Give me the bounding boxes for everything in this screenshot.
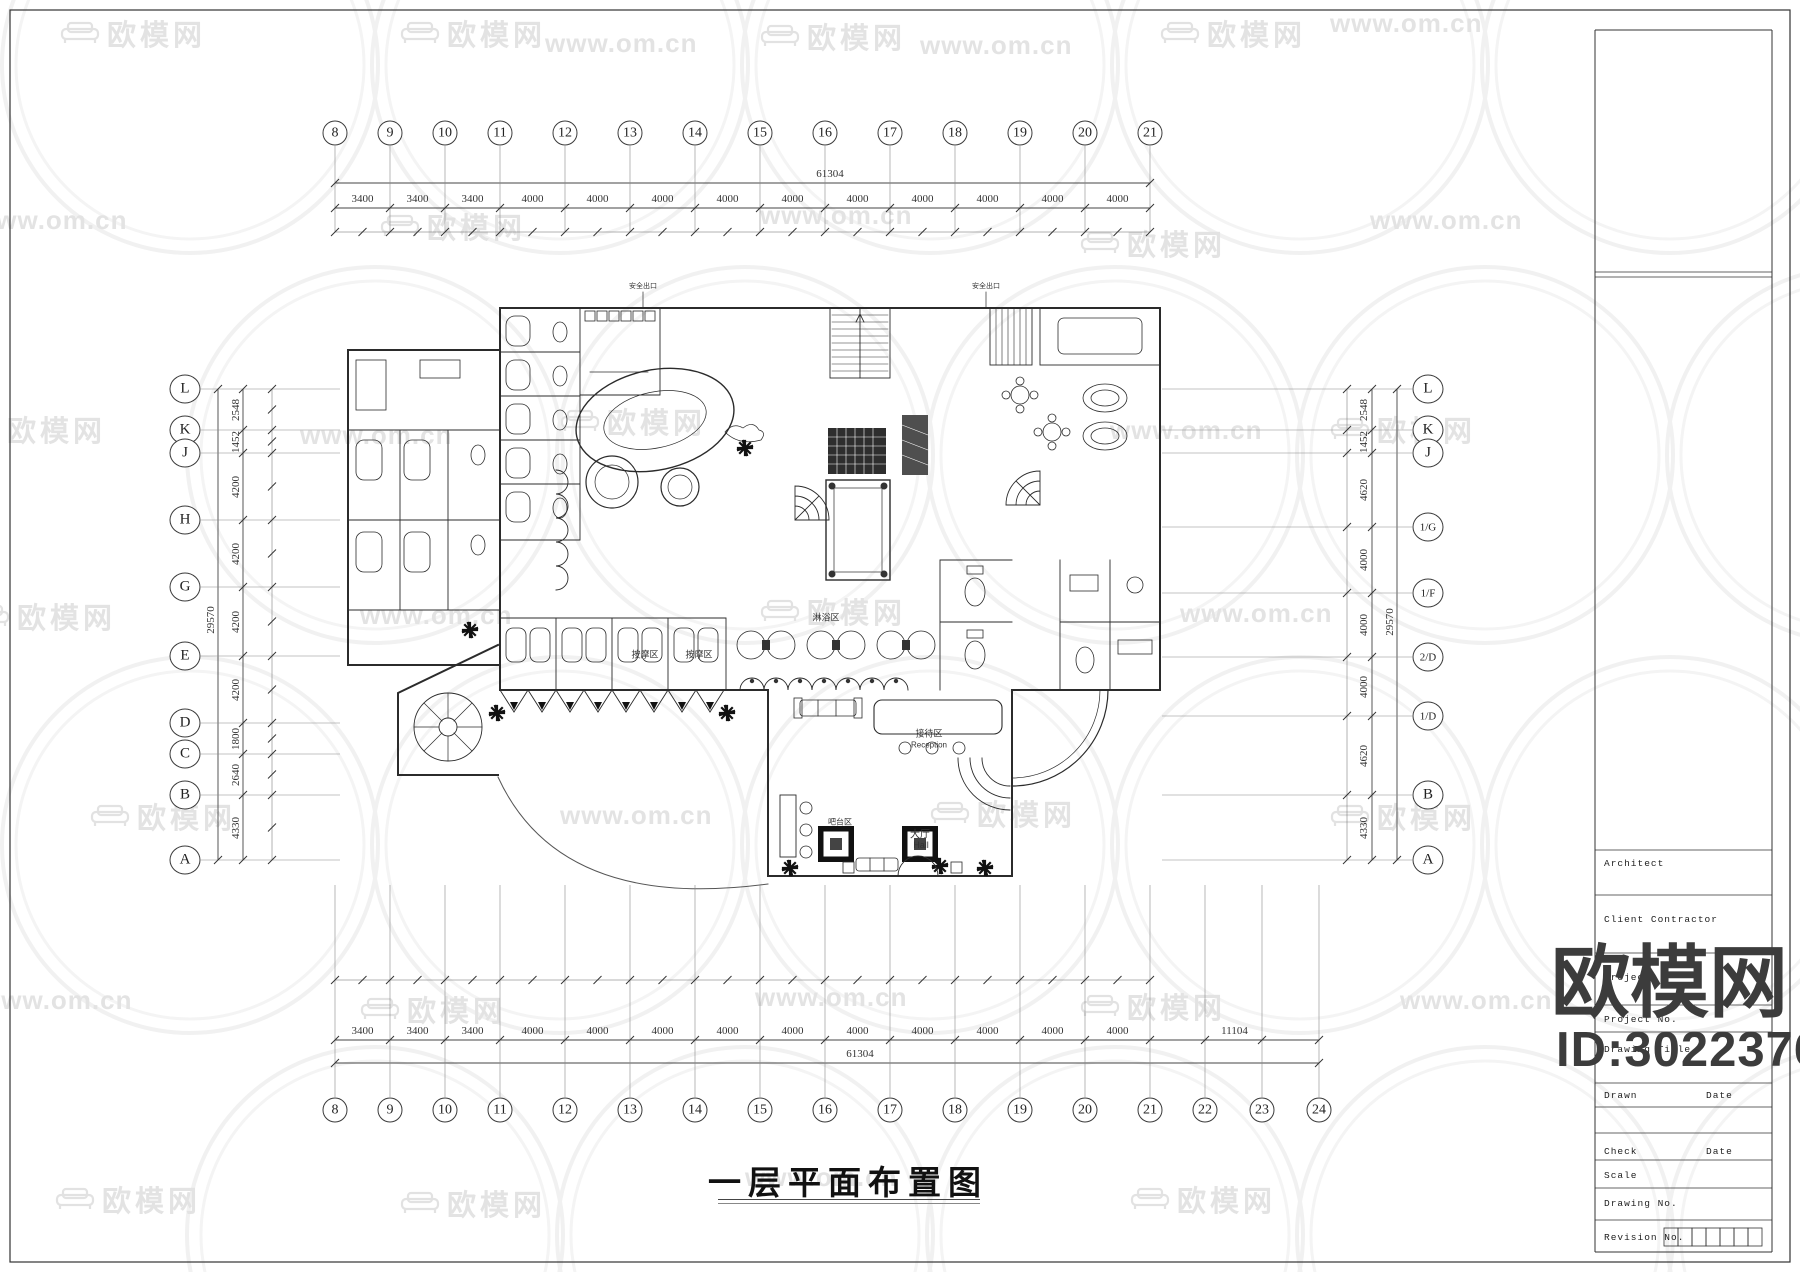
dim-right-segment: 4000 (1358, 614, 1370, 636)
plan-label: 安全出口 (629, 281, 657, 291)
dim-top-segment: 3400 (462, 193, 484, 205)
dim-bottom-segment: 4000 (847, 1025, 869, 1037)
grid-bubble-top-21: 21 (1138, 121, 1163, 146)
grid-bubble-left-J: J (170, 439, 201, 468)
grid-bubble-top-17: 17 (878, 121, 903, 146)
grid-bubble-top-11: 11 (488, 121, 513, 146)
dim-top-segment: 4000 (652, 193, 674, 205)
dim-right-segment: 1452 (1358, 431, 1370, 453)
grid-bubble-top-20: 20 (1073, 121, 1098, 146)
grid-bubble-top-15: 15 (748, 121, 773, 146)
dim-top-segment: 4000 (1107, 193, 1129, 205)
dim-left-segment: 4200 (230, 543, 242, 565)
dim-left-segment: 4200 (230, 679, 242, 701)
grid-bubble-right-1-D: 1/D (1413, 702, 1444, 731)
grid-bubble-right-L: L (1413, 375, 1444, 404)
dim-left-segment: 4200 (230, 476, 242, 498)
grid-bubble-right-B: B (1413, 781, 1444, 810)
grid-bubble-top-12: 12 (553, 121, 578, 146)
grid-bubble-left-L: L (170, 375, 201, 404)
grid-bubble-bottom-24: 24 (1307, 1098, 1332, 1123)
grid-bubble-bottom-17: 17 (878, 1098, 903, 1123)
plan-label: 大厅 (910, 826, 930, 841)
titleblock-check-date-label: Date (1706, 1146, 1733, 1157)
grid-bubble-top-14: 14 (683, 121, 708, 146)
plan-label: Reception (911, 741, 947, 750)
grid-bubble-bottom-21: 21 (1138, 1098, 1163, 1123)
dim-top-segment: 4000 (522, 193, 544, 205)
dim-left-segment: 4200 (230, 611, 242, 633)
plan-label: 安全出口 (972, 281, 1000, 291)
dim-left-total: 29570 (205, 606, 217, 634)
dim-bottom-segment: 4000 (717, 1025, 739, 1037)
dim-right-segment: 4000 (1358, 549, 1370, 571)
grid-dimension-lines (0, 0, 1800, 1272)
dim-bottom-segment: 4000 (782, 1025, 804, 1037)
dim-left-segment: 1452 (230, 431, 242, 453)
dim-bottom-segment: 3400 (462, 1025, 484, 1037)
grid-bubble-top-19: 19 (1008, 121, 1033, 146)
plan-label: 按摩区 (631, 648, 658, 661)
titleblock-check-label: Check (1604, 1146, 1638, 1157)
dim-bottom-segment: 4000 (1107, 1025, 1129, 1037)
grid-bubble-top-18: 18 (943, 121, 968, 146)
dim-bottom-segment: 11104 (1221, 1025, 1248, 1037)
grid-bubble-bottom-16: 16 (813, 1098, 838, 1123)
grid-bubble-right-J: J (1413, 439, 1444, 468)
dim-top-segment: 3400 (407, 193, 429, 205)
dim-right-segment: 4620 (1358, 479, 1370, 501)
dim-right-segment: 4620 (1358, 745, 1370, 767)
grid-bubble-bottom-15: 15 (748, 1098, 773, 1123)
dim-top-segment: 4000 (717, 193, 739, 205)
dim-bottom-segment: 4000 (977, 1025, 999, 1037)
grid-bubble-right-2-D: 2/D (1413, 643, 1444, 672)
grid-bubble-right-1-F: 1/F (1413, 579, 1444, 608)
grid-bubble-bottom-11: 11 (488, 1098, 513, 1123)
dim-top-segment: 4000 (912, 193, 934, 205)
grid-bubble-left-A: A (170, 846, 201, 875)
grid-bubble-top-8: 8 (323, 121, 348, 146)
title-underline-2 (718, 1203, 980, 1204)
dim-left-segment: 2640 (230, 764, 242, 786)
dim-left-segment: 1800 (230, 728, 242, 750)
dim-top-segment: 4000 (977, 193, 999, 205)
dim-top-segment: 4000 (587, 193, 609, 205)
grid-bubble-left-C: C (170, 740, 201, 769)
grid-bubble-left-D: D (170, 709, 201, 738)
dim-right-total: 29570 (1384, 608, 1396, 636)
grid-bubble-top-16: 16 (813, 121, 838, 146)
dim-top-segment: 4000 (847, 193, 869, 205)
grid-bubble-bottom-10: 10 (433, 1098, 458, 1123)
grid-bubble-left-G: G (170, 573, 201, 602)
plan-label: 接待区 (915, 727, 942, 740)
cad-sheet: { "sheet_title": "一层平面布置图", "brand": { "… (0, 0, 1800, 1272)
titleblock-revision-no-label: Revision No. (1604, 1232, 1684, 1243)
dim-bottom-segment: 3400 (352, 1025, 374, 1037)
dim-right-segment: 4330 (1358, 817, 1370, 839)
dim-bottom-segment: 4000 (522, 1025, 544, 1037)
dim-bottom-segment: 4000 (912, 1025, 934, 1037)
grid-bubble-bottom-14: 14 (683, 1098, 708, 1123)
grid-bubble-top-9: 9 (378, 121, 403, 146)
grid-bubble-right-1-G: 1/G (1413, 513, 1444, 542)
plan-label: 吧台区 (828, 817, 852, 828)
brand-logo: 欧模网 (1551, 918, 1788, 1033)
plan-label: 按摩区 (685, 648, 712, 661)
grid-bubble-bottom-19: 19 (1008, 1098, 1033, 1123)
plan-label: 淋浴区 (812, 611, 839, 624)
grid-bubble-bottom-9: 9 (378, 1098, 403, 1123)
grid-bubble-bottom-20: 20 (1073, 1098, 1098, 1123)
dim-left-segment: 4330 (230, 817, 242, 839)
dim-bottom-segment: 4000 (1042, 1025, 1064, 1037)
grid-bubble-bottom-23: 23 (1250, 1098, 1275, 1123)
dim-bottom-segment: 4000 (652, 1025, 674, 1037)
titleblock-drawn-date-label: Date (1706, 1090, 1733, 1101)
titleblock-drawing-no-label: Drawing No. (1604, 1198, 1678, 1209)
dim-top-segment: 3400 (352, 193, 374, 205)
grid-bubble-bottom-22: 22 (1193, 1098, 1218, 1123)
grid-bubble-bottom-12: 12 (553, 1098, 578, 1123)
plan-label: Hall (913, 840, 929, 850)
dim-top-segment: 4000 (782, 193, 804, 205)
titleblock-drawn-label: Drawn (1604, 1090, 1638, 1101)
titleblock-architect-label: Architect (1604, 858, 1664, 869)
grid-bubble-left-H: H (170, 506, 201, 535)
dim-left-segment: 2548 (230, 399, 242, 421)
dim-bottom-segment: 4000 (587, 1025, 609, 1037)
grid-bubble-bottom-8: 8 (323, 1098, 348, 1123)
dim-bottom-total: 61304 (846, 1048, 874, 1060)
dim-right-segment: 2548 (1358, 399, 1370, 421)
grid-bubble-right-A: A (1413, 846, 1444, 875)
dim-top-total: 61304 (816, 168, 844, 180)
dim-top-segment: 4000 (1042, 193, 1064, 205)
grid-bubble-top-13: 13 (618, 121, 643, 146)
title-underline (718, 1199, 980, 1200)
titleblock-scale-label: Scale (1604, 1170, 1638, 1181)
brand-id-number: ID:3022376 (1556, 1022, 1800, 1078)
sheet-title: 一层平面布置图 (708, 1156, 988, 1204)
grid-bubble-bottom-13: 13 (618, 1098, 643, 1123)
grid-bubble-left-E: E (170, 642, 201, 671)
grid-bubble-top-10: 10 (433, 121, 458, 146)
dim-bottom-segment: 3400 (407, 1025, 429, 1037)
grid-bubble-left-B: B (170, 781, 201, 810)
dim-right-segment: 4000 (1358, 676, 1370, 698)
grid-bubble-bottom-18: 18 (943, 1098, 968, 1123)
